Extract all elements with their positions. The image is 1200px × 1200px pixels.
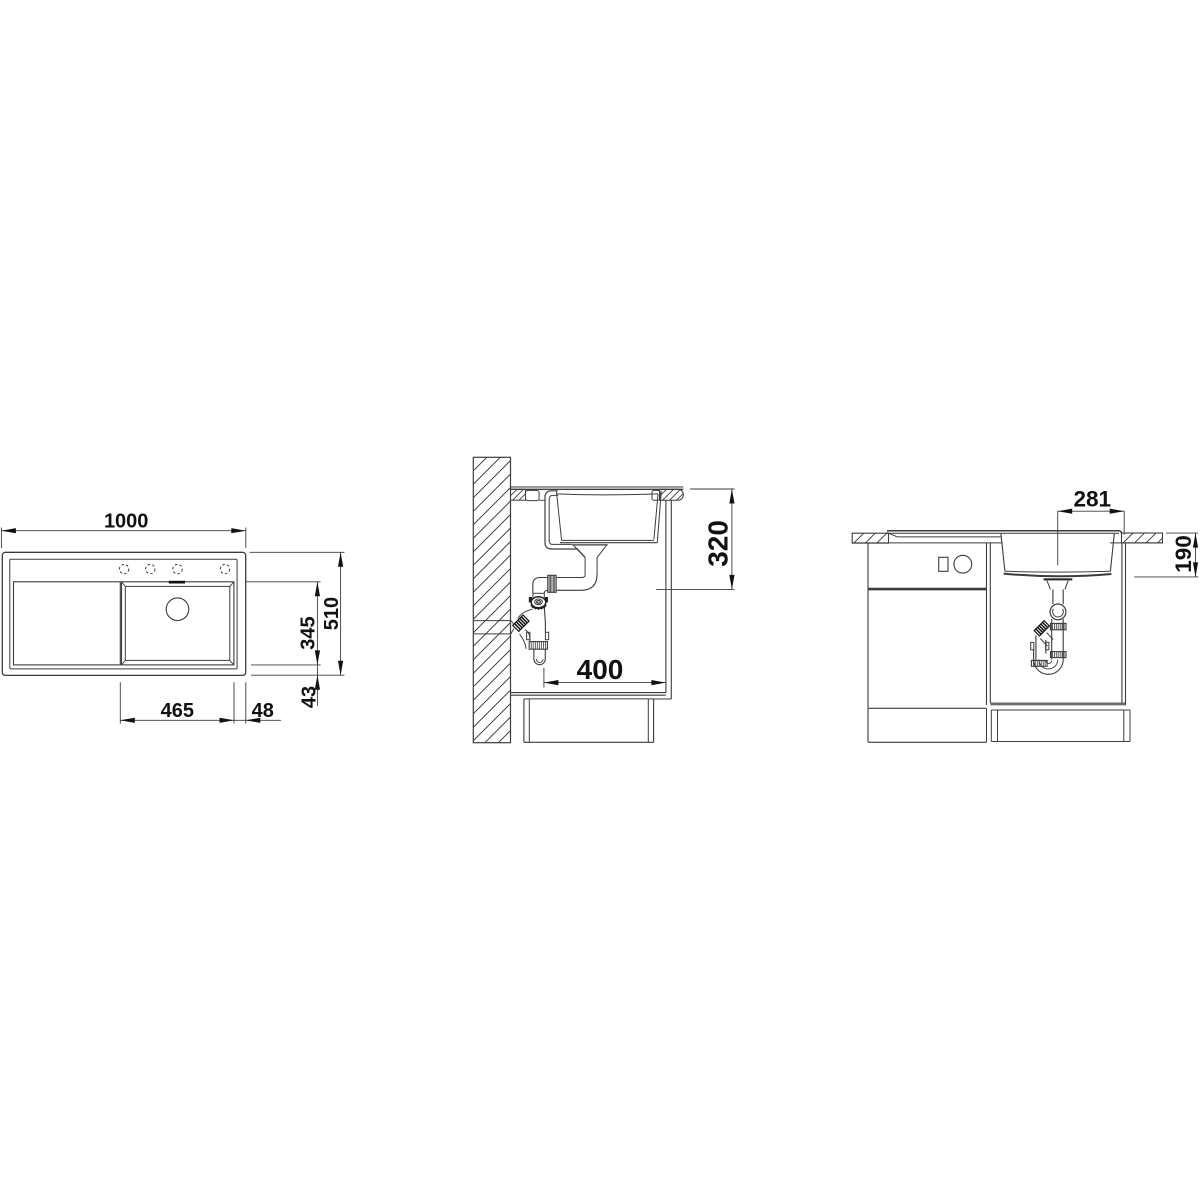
svg-text:43: 43 bbox=[298, 686, 320, 708]
svg-text:400: 400 bbox=[577, 654, 624, 685]
svg-text:1000: 1000 bbox=[104, 511, 149, 533]
svg-text:345: 345 bbox=[298, 616, 320, 649]
svg-text:465: 465 bbox=[161, 700, 194, 722]
svg-text:48: 48 bbox=[252, 700, 274, 722]
svg-text:320: 320 bbox=[702, 520, 733, 567]
svg-text:190: 190 bbox=[1171, 535, 1196, 573]
svg-text:281: 281 bbox=[1074, 487, 1112, 512]
svg-text:510: 510 bbox=[321, 597, 343, 630]
